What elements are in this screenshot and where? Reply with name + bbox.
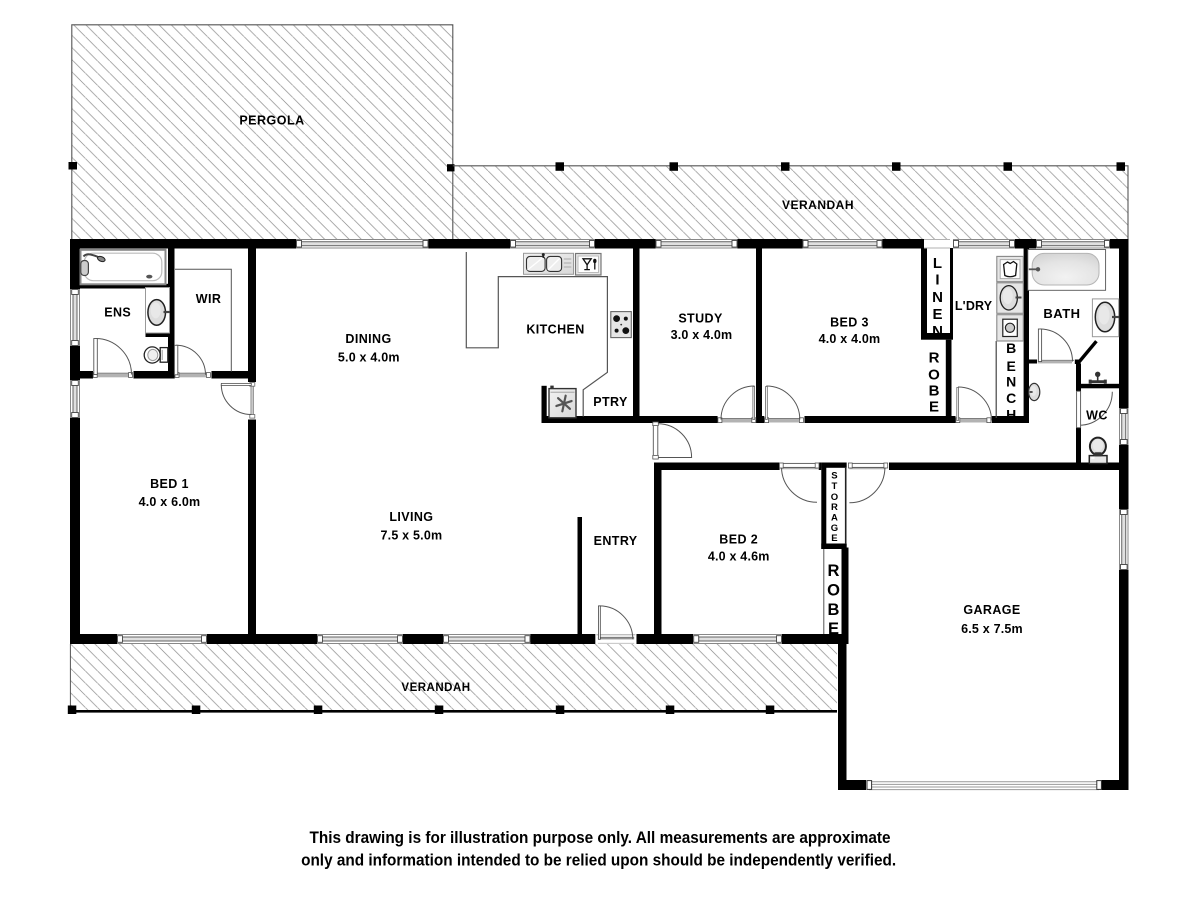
svg-text:B: B: [1006, 340, 1016, 356]
svg-text:BED 2: BED 2: [719, 533, 758, 547]
svg-text:VERANDAH: VERANDAH: [401, 682, 470, 694]
svg-text:WIR: WIR: [196, 292, 222, 306]
svg-text:L: L: [933, 255, 942, 272]
svg-text:R: R: [929, 349, 940, 366]
svg-text:only and information intended: only and information intended to be reli…: [301, 851, 896, 869]
svg-text:WC: WC: [1086, 408, 1108, 422]
svg-text:3.0 x 4.0m: 3.0 x 4.0m: [671, 328, 733, 342]
svg-text:GARAGE: GARAGE: [963, 603, 1020, 617]
svg-text:A: A: [831, 512, 838, 523]
svg-text:B: B: [929, 382, 940, 399]
svg-text:BATH: BATH: [1043, 306, 1080, 321]
svg-text:KITCHEN: KITCHEN: [526, 323, 584, 337]
svg-text:E: E: [828, 620, 839, 638]
svg-text:N: N: [932, 323, 943, 340]
svg-text:STUDY: STUDY: [678, 311, 723, 325]
svg-text:BED 3: BED 3: [830, 316, 869, 330]
svg-text:4.0 x 4.0m: 4.0 x 4.0m: [819, 332, 881, 346]
svg-text:N: N: [932, 289, 943, 306]
svg-text:B: B: [828, 601, 840, 619]
svg-text:H: H: [1006, 407, 1016, 423]
svg-text:ENTRY: ENTRY: [594, 534, 638, 548]
svg-text:E: E: [929, 398, 939, 415]
svg-text:E: E: [932, 306, 942, 323]
svg-text:DINING: DINING: [345, 332, 391, 346]
svg-text:S: S: [831, 471, 837, 482]
svg-text:PTRY: PTRY: [593, 395, 628, 409]
svg-text:N: N: [1006, 373, 1016, 389]
svg-text:7.5 x 5.0m: 7.5 x 5.0m: [381, 529, 443, 543]
svg-text:This drawing is for illustrati: This drawing is for illustration purpose…: [310, 829, 891, 847]
svg-text:4.0 x 4.6m: 4.0 x 4.6m: [708, 550, 770, 564]
svg-text:O: O: [928, 366, 940, 383]
svg-text:R: R: [828, 562, 840, 580]
svg-text:VERANDAH: VERANDAH: [782, 198, 854, 212]
svg-text:BED 1: BED 1: [150, 477, 189, 491]
svg-text:E: E: [831, 533, 837, 544]
svg-text:PERGOLA: PERGOLA: [239, 114, 304, 128]
svg-text:O: O: [827, 581, 840, 599]
svg-text:5.0 x 4.0m: 5.0 x 4.0m: [338, 351, 400, 365]
svg-text:LIVING: LIVING: [389, 510, 433, 524]
svg-text:ENS: ENS: [104, 305, 131, 319]
svg-text:C: C: [1006, 390, 1016, 406]
svg-text:6.5 x 7.5m: 6.5 x 7.5m: [961, 622, 1023, 636]
svg-text:4.0 x 6.0m: 4.0 x 6.0m: [139, 495, 201, 509]
svg-text:L'DRY: L'DRY: [955, 299, 993, 313]
svg-text:T: T: [831, 481, 837, 492]
svg-text:E: E: [1007, 358, 1016, 374]
svg-text:I: I: [935, 271, 939, 288]
